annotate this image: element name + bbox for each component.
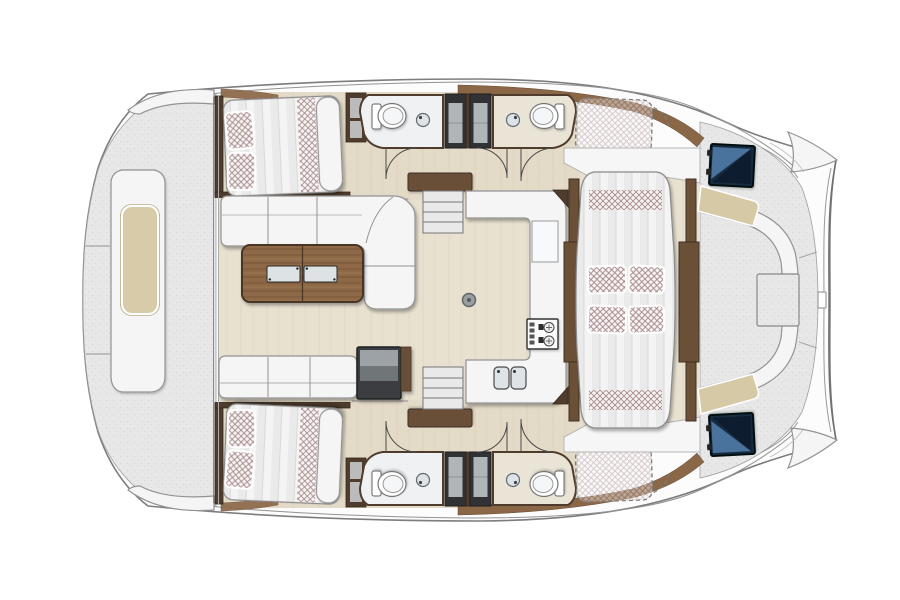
foredeck-sun-pad [122,206,158,314]
daybed-checker-band [589,190,662,210]
cockpit-table [757,274,799,326]
port-settee-bench [219,356,357,398]
sliding-wardrobe-block [445,94,466,148]
floor-plan-svg [0,0,900,600]
table-glass-insert [304,266,337,282]
transom-notch [818,292,826,308]
floor-plan-page [0,0,900,600]
sliding-wardrobe-block [470,94,491,148]
toilet [372,104,406,130]
round-sink [417,114,430,127]
cabinet-wood-trim [401,347,411,391]
stair-bulkhead [408,173,472,191]
berth-foot-cushion [316,97,343,192]
central-daybed [576,172,675,428]
center-bulkhead [466,94,470,148]
berth-pillow [225,111,255,150]
forward-cabin [215,96,350,198]
double-berth [223,96,343,197]
foredeck-lounge-platform [111,170,165,392]
toilet [530,104,564,130]
table-glass-insert [267,266,300,282]
counter-inset [532,221,558,262]
daybed-checker-band [589,390,662,410]
berth-pillow [228,153,255,190]
stove [527,319,558,349]
salon-cabinet [357,347,411,399]
floor-hatch-ring [463,294,476,307]
coffee-table [242,245,363,302]
cockpit-glass-hatch [705,144,755,187]
round-sink [507,114,520,127]
